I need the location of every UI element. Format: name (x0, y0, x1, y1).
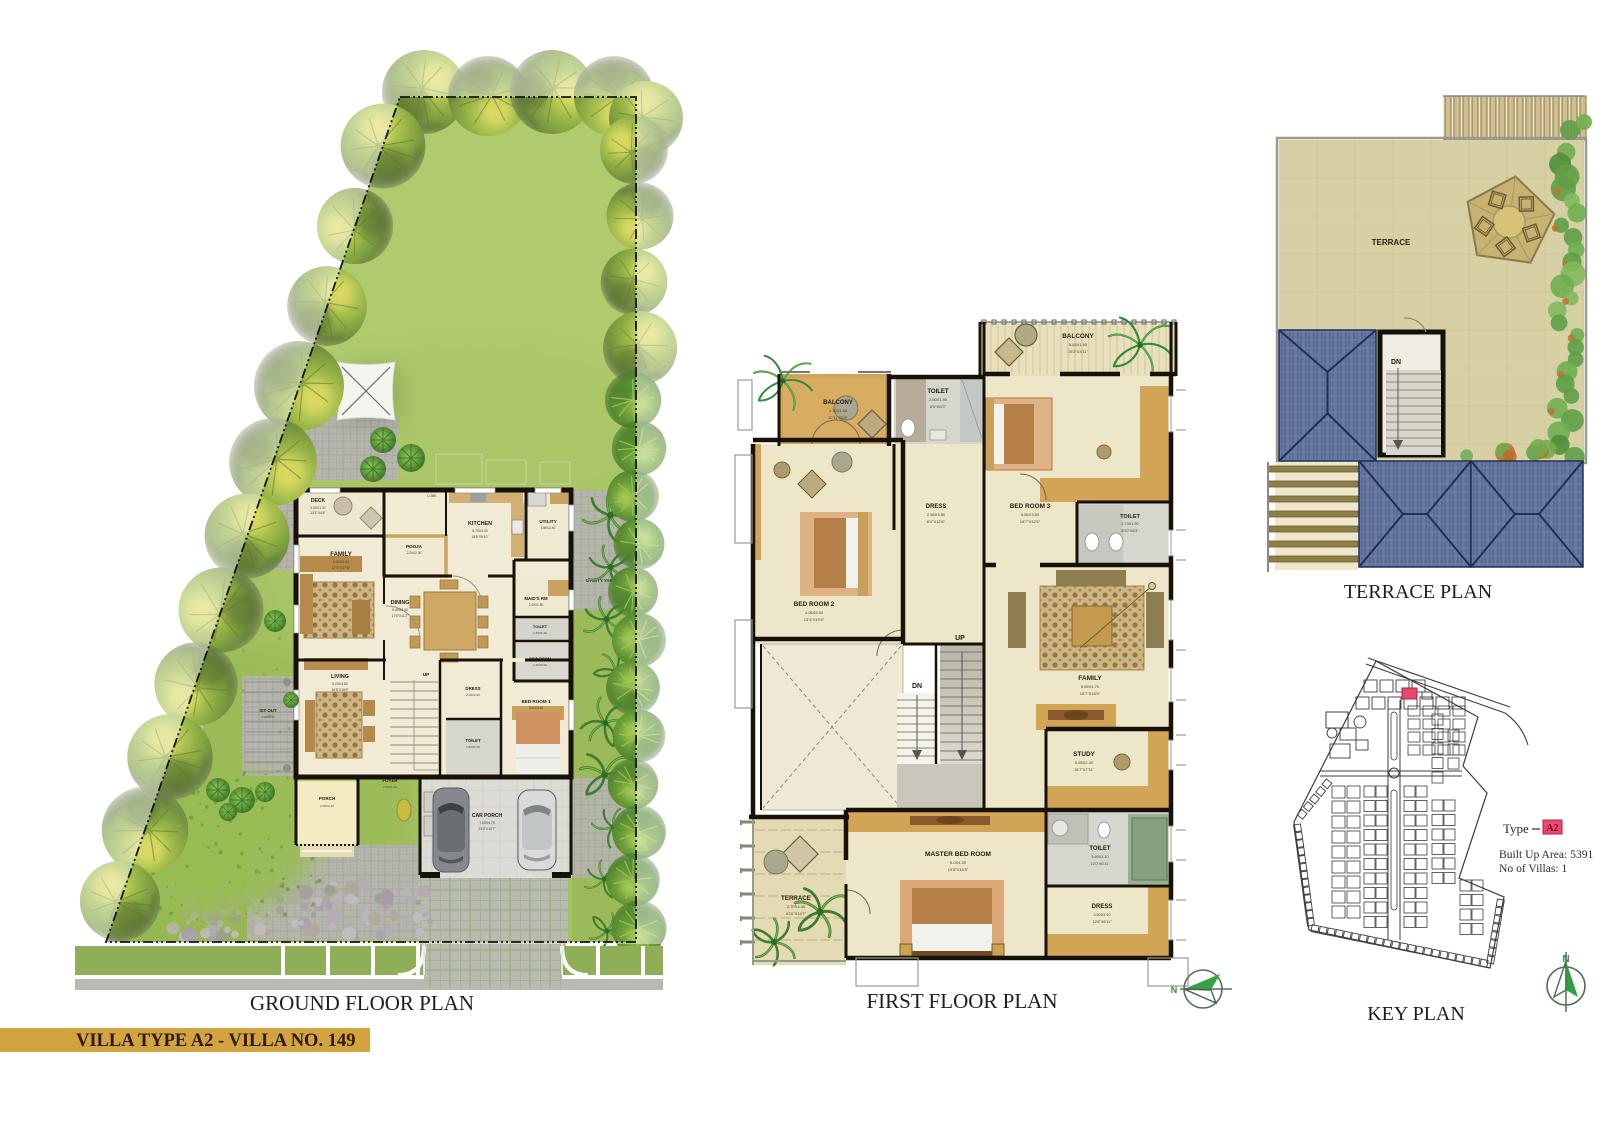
svg-text:1.50X2.00: 1.50X2.00 (533, 663, 547, 667)
svg-text:BED ROOM 3: BED ROOM 3 (1010, 503, 1051, 510)
svg-text:TERRACE PLAN: TERRACE PLAN (1344, 581, 1492, 603)
svg-text:18'7"X15'5": 18'7"X15'5" (1080, 691, 1101, 696)
svg-text:16'5"X15'9": 16'5"X15'9" (331, 688, 349, 692)
svg-text:SIT OUT: SIT OUT (259, 708, 277, 713)
svg-text:5.65X3.80: 5.65X3.80 (1021, 512, 1040, 517)
svg-text:KITCHEN: KITCHEN (468, 521, 492, 527)
svg-text:12'0"X6'11": 12'0"X6'11" (1090, 862, 1110, 866)
svg-text:POOJA: POOJA (406, 544, 423, 549)
svg-text:Type: Type (1503, 821, 1529, 836)
svg-text:FOYER: FOYER (382, 778, 398, 783)
svg-text:1.80X2.40: 1.80X2.40 (541, 526, 556, 530)
svg-text:10'11"X6'5": 10'11"X6'5" (828, 415, 849, 420)
svg-text:8'10"X14'7": 8'10"X14'7" (786, 911, 807, 916)
svg-text:8'6"X6'3": 8'6"X6'3" (930, 404, 947, 409)
svg-text:19'8"X14'3": 19'8"X14'3" (948, 867, 969, 872)
svg-text:2.60X1.90: 2.60X1.90 (929, 397, 948, 402)
svg-text:LOBK: LOBK (427, 494, 437, 498)
svg-text:UTILITY: UTILITY (539, 519, 556, 524)
svg-text:5.70X3.00: 5.70X3.00 (472, 529, 488, 533)
svg-text:DECK: DECK (311, 498, 326, 504)
svg-text:LIVING: LIVING (331, 674, 349, 680)
svg-text:MASTER BED ROOM: MASTER BED ROOM (925, 851, 991, 858)
svg-text:GROUND FLOOR PLAN: GROUND FLOOR PLAN (250, 991, 474, 1015)
svg-text:PORCH: PORCH (319, 796, 336, 801)
svg-text:DRESS: DRESS (926, 504, 947, 510)
svg-text:BALCONY: BALCONY (823, 400, 853, 406)
svg-text:TERRACE: TERRACE (1372, 238, 1411, 247)
svg-text:VILLA TYPE A2 - VILLA NO. 149: VILLA TYPE A2 - VILLA NO. 149 (76, 1031, 355, 1051)
svg-text:A2: A2 (1546, 823, 1558, 834)
svg-text:MAID'S RM: MAID'S RM (524, 596, 548, 601)
svg-text:TOILET: TOILET (533, 624, 548, 629)
svg-text:2.00X1.80: 2.00X1.80 (529, 603, 544, 607)
svg-text:17'2"X17'8": 17'2"X17'8" (332, 566, 351, 570)
svg-text:FAMILY: FAMILY (330, 552, 351, 558)
svg-text:3.60X2.10: 3.60X2.10 (1091, 855, 1108, 859)
svg-text:5.00X4.80: 5.00X4.80 (332, 682, 348, 686)
svg-text:TOILET: TOILET (927, 389, 949, 395)
svg-text:DRESS: DRESS (1092, 904, 1113, 910)
svg-text:2.00X3.00: 2.00X3.00 (261, 715, 275, 719)
svg-text:TERRACE: TERRACE (781, 895, 811, 902)
svg-text:Built Up Area: 5391: Built Up Area: 5391 (1499, 848, 1594, 861)
svg-text:8'4"X12'6": 8'4"X12'6" (927, 519, 946, 524)
svg-text:UP: UP (955, 635, 965, 642)
svg-text:19'2"X4'11": 19'2"X4'11" (1068, 349, 1089, 354)
svg-text:DN: DN (1391, 359, 1401, 366)
svg-text:2.20X2.00: 2.20X2.00 (407, 551, 422, 555)
svg-text:12'6"X6'11": 12'6"X6'11" (1092, 920, 1112, 924)
svg-text:2.70X4.45: 2.70X4.45 (787, 904, 806, 909)
svg-text:TOILET: TOILET (465, 738, 481, 743)
svg-text:3.30X1.95: 3.30X1.95 (829, 408, 848, 413)
svg-text:7.00X4.75: 7.00X4.75 (479, 821, 495, 825)
svg-text:DRESS: DRESS (465, 686, 480, 691)
svg-text:13'4"X19'4": 13'4"X19'4" (804, 617, 825, 622)
svg-text:5.65X4.70: 5.65X4.70 (1081, 684, 1100, 689)
svg-text:17'8"X11'2": 17'8"X11'2" (391, 614, 409, 618)
svg-text:KEY PLAN: KEY PLAN (1367, 1003, 1465, 1025)
svg-text:DINING: DINING (391, 600, 410, 606)
svg-text:2.70X1.90: 2.70X1.90 (1121, 522, 1138, 526)
svg-text:6.0X4.35: 6.0X4.35 (950, 860, 967, 865)
svg-text:3.60X2.10: 3.60X2.10 (1093, 913, 1110, 917)
svg-text:TOILET: TOILET (1120, 514, 1140, 520)
svg-text:DN: DN (912, 683, 922, 690)
svg-text:18'7"X12'6": 18'7"X12'6" (1020, 519, 1041, 524)
svg-text:BALCONY: BALCONY (1062, 333, 1094, 340)
svg-text:BED ROOM 1: BED ROOM 1 (521, 699, 551, 704)
svg-text:1.50X1.20: 1.50X1.20 (533, 631, 547, 635)
svg-text:FIRST FLOOR PLAN: FIRST FLOOR PLAN (867, 989, 1058, 1013)
svg-text:N: N (1171, 985, 1178, 995)
svg-text:5.83X1.50: 5.83X1.50 (1069, 342, 1088, 347)
svg-text:FAMILY: FAMILY (1078, 675, 1102, 682)
svg-text:5.40X3.40: 5.40X3.40 (392, 608, 408, 612)
svg-text:3.60X3.60: 3.60X3.60 (529, 706, 544, 710)
svg-text:2.55X3.80: 2.55X3.80 (927, 512, 946, 517)
svg-text:N: N (1562, 954, 1569, 965)
svg-text:1.50X2.40: 1.50X2.40 (466, 745, 480, 749)
svg-text:18'7"X7'11": 18'7"X7'11" (1074, 767, 1095, 772)
svg-text:CAR PORCH: CAR PORCH (472, 813, 503, 819)
svg-text:23'0"X15'7": 23'0"X15'7" (478, 827, 496, 831)
svg-text:13'1"X4'6": 13'1"X4'6" (310, 511, 326, 515)
svg-text:No of Villas: 1: No of Villas: 1 (1499, 862, 1568, 875)
svg-text:5.00X5.40: 5.00X5.40 (333, 560, 349, 564)
svg-text:18'8"X9'10": 18'8"X9'10" (471, 535, 489, 539)
svg-text:STUDY: STUDY (1073, 751, 1095, 758)
svg-text:2.00X2.20: 2.00X2.20 (466, 693, 480, 697)
svg-text:UP: UP (423, 672, 429, 677)
svg-text:2.00X2.40: 2.00X2.40 (320, 804, 334, 808)
svg-text:2.00X1.40: 2.00X1.40 (383, 785, 397, 789)
svg-text:4.05X5.90: 4.05X5.90 (805, 610, 824, 615)
svg-text:8'10"X6'3": 8'10"X6'3" (1121, 529, 1139, 533)
svg-text:BED ROOM 2: BED ROOM 2 (794, 601, 835, 608)
svg-text:4.00X1.37: 4.00X1.37 (310, 506, 326, 510)
svg-text:POW.ROOM: POW.ROOM (529, 657, 551, 661)
svg-text:5.65X2.40: 5.65X2.40 (1075, 760, 1094, 765)
svg-text:TOILET: TOILET (1089, 846, 1111, 852)
